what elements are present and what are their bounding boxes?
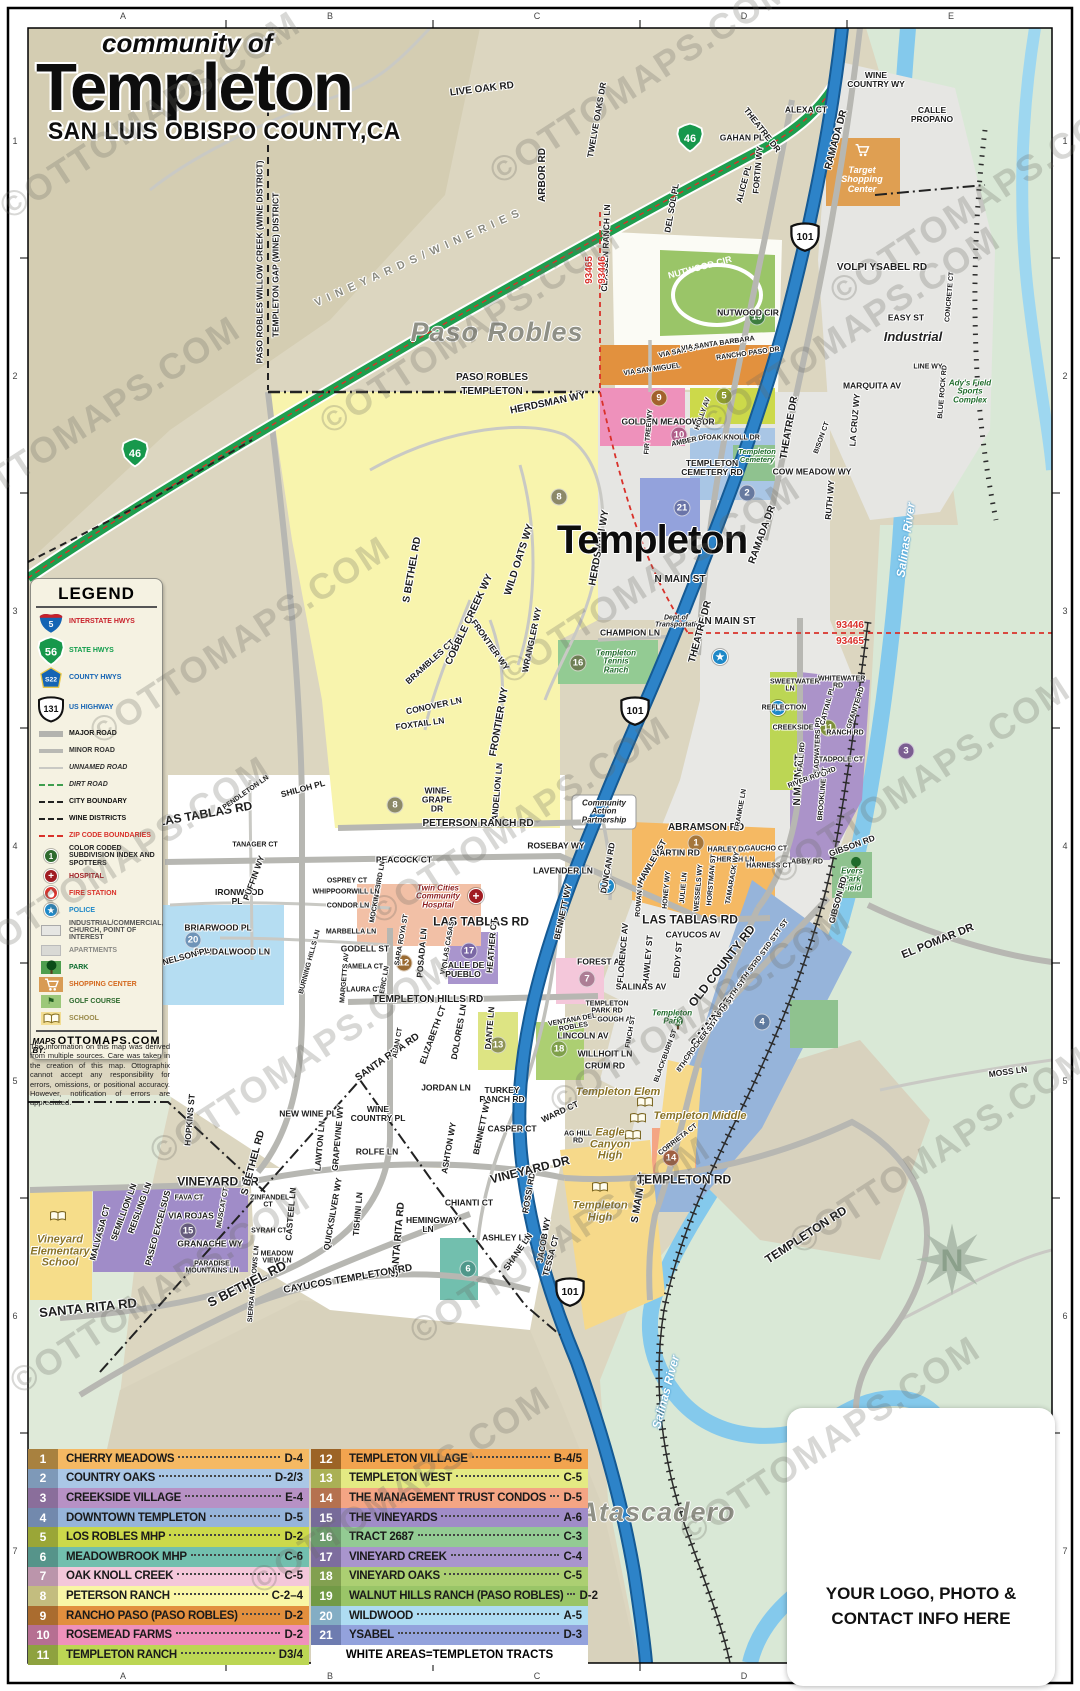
leader-dots: [451, 1554, 560, 1556]
tract-row: 19WALNUT HILLS RANCH (PASO ROBLES)D-2: [311, 1586, 588, 1606]
svg-text:56: 56: [45, 646, 57, 658]
legend-swatch-box-industrial: [36, 925, 66, 936]
legend-swatch-box-park: [36, 961, 66, 974]
grid-number: 7: [12, 1546, 17, 1556]
legend-item: ★POLICE: [36, 903, 157, 919]
grid-number: 7: [1062, 1546, 1067, 1556]
tract-name: CREEKSIDE VILLAGE: [66, 1492, 181, 1504]
page-title: Templeton: [36, 59, 419, 118]
tract-grid-ref: B-4/5: [554, 1453, 582, 1465]
svg-text:131: 131: [43, 704, 58, 714]
legend-swatch-shield-state: 56: [36, 636, 66, 666]
tract-number: 3: [28, 1488, 58, 1508]
grid-number: 5: [12, 1076, 17, 1086]
tract-number: 11: [28, 1645, 58, 1665]
legend-item-label: STATE HWYS: [66, 647, 114, 654]
legend-item-label: MAJOR ROAD: [66, 730, 117, 737]
tract-entry: WALNUT HILLS RANCH (PASO ROBLES)D-2: [341, 1586, 604, 1606]
leader-dots: [177, 1573, 280, 1575]
legend-item: +HOSPITAL: [36, 869, 157, 885]
leader-dots: [441, 1515, 559, 1517]
grid-number: 2: [1062, 371, 1067, 381]
tract-row: 21YSABELD-3: [311, 1625, 588, 1645]
tract-number: 5: [28, 1527, 58, 1547]
legend-item-label: US HIGHWAY: [66, 704, 113, 711]
tract-grid-ref: C-5: [563, 1472, 582, 1484]
legend-item: DIRT ROAD: [36, 777, 157, 793]
logo-placeholder-box: YOUR LOGO, PHOTO & CONTACT INFO HERE: [787, 1408, 1055, 1686]
tract-number: 10: [28, 1625, 58, 1645]
legend-item-label: PARK: [66, 964, 88, 971]
legend-item-label: APARTMENTS: [66, 947, 117, 954]
grid-letter: B: [327, 1671, 333, 1681]
tract-number: 20: [311, 1606, 341, 1626]
tract-name: VINEYARD CREEK: [349, 1551, 447, 1563]
tract-number: 9: [28, 1606, 58, 1626]
legend-item-label: WINE DISTRICTS: [66, 815, 126, 822]
tract-grid-ref: C-3: [563, 1531, 582, 1543]
legend-item-label: SHOPPING CENTER: [66, 981, 137, 988]
tract-grid-ref: D-3: [563, 1629, 582, 1641]
leader-dots: [472, 1456, 550, 1458]
tract-entry: CREEKSIDE VILLAGEE-4: [58, 1488, 309, 1508]
tract-grid-ref: C-4: [563, 1551, 582, 1563]
tract-grid-ref: A-6: [563, 1512, 582, 1524]
tract-grid-ref: A-5: [563, 1610, 582, 1622]
compass-rose-icon: N: [915, 1223, 989, 1302]
leader-dots: [159, 1475, 271, 1477]
tract-name: DOWNTOWN TEMPLETON: [66, 1512, 206, 1524]
tract-entry: CHERRY MEADOWSD-4: [58, 1449, 309, 1469]
tract-row: 12TEMPLETON VILLAGEB-4/5: [311, 1449, 588, 1469]
legend-items: 5INTERSTATE HWYS56STATE HWYSS22COUNTY HW…: [36, 610, 157, 1027]
legend-item: MAJOR ROAD: [36, 726, 157, 742]
legend-swatch-road-dirt: [36, 784, 66, 786]
tract-name: YSABEL: [349, 1629, 394, 1641]
tract-grid-ref: D-4: [284, 1453, 303, 1465]
tract-entry: TRACT 2687C-3: [341, 1527, 588, 1547]
grid-number: 3: [1062, 606, 1067, 616]
legend-item-label: ZIP CODE BOUNDARIES: [66, 832, 151, 839]
legend-item-label: SCHOOL: [66, 1015, 99, 1022]
tract-grid-ref: C-2–4: [272, 1590, 303, 1602]
tract-row: 11TEMPLETON RANCHD3/4: [28, 1645, 309, 1665]
tract-name: WILDWOOD: [349, 1610, 413, 1622]
legend-item: S22COUNTY HWYS: [36, 667, 157, 689]
grid-number: 3: [12, 606, 17, 616]
tract-grid-ref: D-5: [563, 1492, 582, 1504]
tract-name: VINEYARD OAKS: [349, 1570, 440, 1582]
tract-entry: VINEYARD OAKSC-5: [341, 1567, 588, 1587]
leader-dots: [176, 1632, 281, 1634]
grid-number: 2: [12, 371, 17, 381]
tract-name: OAK KNOLL CREEK: [66, 1570, 173, 1582]
tract-number: 14: [311, 1488, 341, 1508]
grid-letter: C: [534, 1671, 541, 1681]
tract-row: 8PETERSON RANCHC-2–4: [28, 1586, 309, 1606]
tract-entry: TEMPLETON RANCHD3/4: [58, 1645, 309, 1665]
tract-row: 1CHERRY MEADOWSD-4: [28, 1449, 309, 1469]
grid-letter: C: [534, 11, 541, 21]
tract-row: 6MEADOWBROOK MHPC-6: [28, 1547, 309, 1567]
tract-name: MEADOWBROOK MHP: [66, 1551, 187, 1563]
tract-name: LOS ROBLES MHP: [66, 1531, 165, 1543]
legend-item: ZIP CODE BOUNDARIES: [36, 828, 157, 844]
legend-item-label: GOLF COURSE: [66, 998, 120, 1005]
legend-swatch-police: ★: [36, 903, 66, 917]
tract-number: 6: [28, 1547, 58, 1567]
tract-grid-ref: D-2: [284, 1610, 303, 1622]
tract-entry: THE VINEYARDSA-6: [341, 1508, 588, 1528]
tract-name: COUNTRY OAKS: [66, 1472, 155, 1484]
tract-row: 15THE VINEYARDSA-6: [311, 1508, 588, 1528]
legend-item: 5INTERSTATE HWYS: [36, 610, 157, 634]
legend-swatch-shield-interstate: 5: [36, 610, 66, 634]
tract-name: CHERRY MEADOWS: [66, 1453, 174, 1465]
grid-letter: B: [327, 11, 333, 21]
tract-row: 13TEMPLETON WESTC-5: [311, 1469, 588, 1489]
grid-number: 4: [1062, 841, 1067, 851]
tract-row: 7OAK KNOLL CREEKC-5: [28, 1567, 309, 1587]
tract-entry: COUNTRY OAKSD-2/3: [58, 1469, 309, 1489]
tract-number: 8: [28, 1586, 58, 1606]
leader-dots: [417, 1613, 559, 1615]
tract-row: 3CREEKSIDE VILLAGEE-4: [28, 1488, 309, 1508]
tract-number: 12: [311, 1449, 341, 1469]
tract-entry: THE MANAGEMENT TRUST CONDOSD-5: [341, 1488, 588, 1508]
legend-item-label: COLOR CODED SUBDIVISION INDEX AND SPOTTE…: [66, 845, 157, 867]
tract-row: 10ROSEMEAD FARMSD-2: [28, 1625, 309, 1645]
tract-name: TEMPLETON RANCH: [66, 1649, 177, 1661]
tract-number: 1: [28, 1449, 58, 1469]
grid-number: 4: [12, 841, 17, 851]
legend-item-label: INDUSTRIAL/COMMERCIAL, CHURCH, POINT OF …: [66, 920, 164, 942]
tract-row: 4DOWNTOWN TEMPLETOND-5: [28, 1508, 309, 1528]
leader-dots: [181, 1652, 275, 1654]
legend-item: PARK: [36, 960, 157, 976]
grid-letter: D: [741, 1671, 748, 1681]
tract-grid-ref: D-2: [284, 1629, 303, 1641]
tract-entry: MEADOWBROOK MHPC-6: [58, 1547, 309, 1567]
tract-name: RANCHO PASO (PASO ROBLES): [66, 1610, 238, 1622]
tract-number: 13: [311, 1469, 341, 1489]
leader-dots: [567, 1593, 575, 1595]
svg-text:5: 5: [49, 619, 54, 629]
tract-grid-ref: D3/4: [279, 1649, 303, 1661]
tract-row: 2COUNTRY OAKSD-2/3: [28, 1469, 309, 1489]
legend-swatch-box-golf: ⚑: [36, 995, 66, 1008]
tract-number: 2: [28, 1469, 58, 1489]
legend-swatch-box-apartments: [36, 945, 66, 956]
legend-item-label: CITY BOUNDARY: [66, 798, 127, 805]
tract-row: 20WILDWOODA-5: [311, 1606, 588, 1626]
grid-letter: A: [120, 11, 126, 21]
legend-item: INDUSTRIAL/COMMERCIAL, CHURCH, POINT OF …: [36, 920, 157, 942]
tract-number: 19: [311, 1586, 341, 1606]
tract-name: TEMPLETON VILLAGE: [349, 1453, 468, 1465]
tract-entry: LOS ROBLES MHPD-2: [58, 1527, 309, 1547]
tract-entry: OAK KNOLL CREEKC-5: [58, 1567, 309, 1587]
tract-row: 9RANCHO PASO (PASO ROBLES)D-2: [28, 1606, 309, 1626]
legend-swatch-spotter: 1: [36, 849, 66, 863]
tract-entry: VINEYARD CREEKC-4: [341, 1547, 588, 1567]
legend-swatch-hospital: +: [36, 869, 66, 883]
tract-number: 18: [311, 1567, 341, 1587]
tract-entry: WILDWOODA-5: [341, 1606, 588, 1626]
tract-number: 16: [311, 1527, 341, 1547]
tract-row: 17VINEYARD CREEKC-4: [311, 1547, 588, 1567]
grid-letter: A: [120, 1671, 126, 1681]
leader-dots: [398, 1632, 560, 1634]
tract-name: THE VINEYARDS: [349, 1512, 437, 1524]
tract-name: ROSEMEAD FARMS: [66, 1629, 172, 1641]
legend-item-label: FIRE STATION: [66, 890, 117, 897]
grid-number: 1: [1062, 136, 1067, 146]
tract-name: THE MANAGEMENT TRUST CONDOS: [349, 1492, 546, 1504]
grid-letter: E: [948, 11, 954, 21]
legend-item: ⚑GOLF COURSE: [36, 994, 157, 1010]
legend-swatch-box-school: [36, 1012, 66, 1025]
leader-dots: [169, 1534, 280, 1536]
legend-item: 131US HIGHWAY: [36, 691, 157, 725]
tract-entry: TEMPLETON WESTC-5: [341, 1469, 588, 1489]
legend-item: FIRE STATION: [36, 886, 157, 902]
tract-grid-ref: E-4: [285, 1492, 303, 1504]
legend-item: 56STATE HWYS: [36, 636, 157, 666]
tract-index-footer: WHITE AREAS=TEMPLETON TRACTS: [311, 1645, 588, 1665]
grid-number: 1: [12, 136, 17, 146]
leader-dots: [210, 1515, 281, 1517]
grid-number: 6: [12, 1311, 17, 1321]
logo-placeholder-text: YOUR LOGO, PHOTO & CONTACT INFO HERE: [826, 1582, 1016, 1631]
title-block: community of Templeton SAN LUIS OBISPO C…: [36, 28, 419, 146]
legend-item-label: MINOR ROAD: [66, 747, 115, 754]
tract-entry: RANCHO PASO (PASO ROBLES)D-2: [58, 1606, 309, 1626]
tract-grid-ref: D-2/3: [275, 1472, 303, 1484]
legend-item-label: COUNTY HWYS: [66, 674, 121, 681]
leader-dots: [550, 1495, 559, 1497]
svg-text:S22: S22: [45, 676, 57, 683]
logo-line-1: YOUR LOGO, PHOTO &: [826, 1582, 1016, 1607]
tract-number: 15: [311, 1508, 341, 1528]
tract-entry: YSABELD-3: [341, 1625, 588, 1645]
leader-dots: [418, 1534, 560, 1536]
tract-row: 5LOS ROBLES MHPD-2: [28, 1527, 309, 1547]
tract-grid-ref: D-2: [284, 1531, 303, 1543]
legend-swatch-road-unnamed: [36, 767, 66, 769]
svg-text:N: N: [941, 1242, 964, 1278]
tract-number: 4: [28, 1508, 58, 1528]
leader-dots: [185, 1495, 281, 1497]
legend-item: WINE DISTRICTS: [36, 811, 157, 827]
tract-grid-ref: C-5: [563, 1570, 582, 1582]
legend-swatch-boundary-wine: [36, 818, 66, 820]
legend-swatch-boundary-city: [36, 801, 66, 803]
leader-dots: [178, 1456, 280, 1458]
tract-grid-ref: C-5: [284, 1570, 303, 1582]
tract-number: 7: [28, 1567, 58, 1587]
tract-name: PETERSON RANCH: [66, 1590, 170, 1602]
legend-swatch-road-minor: [36, 749, 66, 753]
leader-dots: [242, 1613, 281, 1615]
tract-entry: DOWNTOWN TEMPLETOND-5: [58, 1508, 309, 1528]
tract-number: 21: [311, 1625, 341, 1645]
legend-swatch-box-shopping: [36, 977, 66, 992]
grid-number: 6: [1062, 1311, 1067, 1321]
tract-name: TRACT 2687: [349, 1531, 414, 1543]
tract-name: TEMPLETON WEST: [349, 1472, 452, 1484]
legend-item-label: DIRT ROAD: [66, 781, 108, 788]
legend-item: APARTMENTS: [36, 943, 157, 959]
legend-item-label: INTERSTATE HWYS: [66, 618, 135, 625]
leader-dots: [444, 1573, 560, 1575]
grid-number: 5: [1062, 1076, 1067, 1086]
grid-letter: D: [741, 11, 748, 21]
tract-entry: TEMPLETON VILLAGEB-4/5: [341, 1449, 588, 1469]
legend-swatch-shield-us: 131: [36, 691, 66, 725]
disclaimer-text: The information on this map was derived …: [30, 1042, 170, 1108]
tract-grid-ref: D-2: [579, 1590, 598, 1602]
title-subtitle: SAN LUIS OBISPO COUNTY,CA: [48, 118, 401, 146]
leader-dots: [456, 1475, 560, 1477]
tract-grid-ref: D-5: [284, 1512, 303, 1524]
legend-item: MINOR ROAD: [36, 743, 157, 759]
legend-swatch-fire: [36, 886, 66, 900]
legend-item-label: POLICE: [66, 907, 95, 914]
legend-swatch-road-major: [36, 731, 66, 737]
legend-item: 1COLOR CODED SUBDIVISION INDEX AND SPOTT…: [36, 845, 157, 867]
legend-item: CITY BOUNDARY: [36, 794, 157, 810]
legend-item: UNNAMED ROAD: [36, 760, 157, 776]
legend-swatch-shield-county: S22: [36, 667, 66, 689]
tract-name: WALNUT HILLS RANCH (PASO ROBLES): [349, 1590, 563, 1602]
legend-title: LEGEND: [36, 584, 157, 608]
legend-item: SHOPPING CENTER: [36, 977, 157, 993]
legend-item: SCHOOL: [36, 1011, 157, 1027]
map-page: N 4646101101101 ★★★+ 1234567889101112131…: [0, 0, 1080, 1691]
tract-number: 17: [311, 1547, 341, 1567]
tract-row: 14THE MANAGEMENT TRUST CONDOSD-5: [311, 1488, 588, 1508]
tract-entry: ROSEMEAD FARMSD-2: [58, 1625, 309, 1645]
legend: LEGEND 5INTERSTATE HWYS56STATE HWYSS22CO…: [30, 578, 163, 1060]
leader-dots: [174, 1593, 268, 1595]
legend-swatch-boundary-zip: [36, 835, 66, 837]
tract-row: 18VINEYARD OAKSC-5: [311, 1567, 588, 1587]
legend-item-label: UNNAMED ROAD: [66, 764, 127, 771]
tract-grid-ref: C-6: [284, 1551, 303, 1563]
leader-dots: [191, 1554, 281, 1556]
legend-item-label: HOSPITAL: [66, 873, 104, 880]
logo-line-2: CONTACT INFO HERE: [826, 1607, 1016, 1632]
tract-row: 16TRACT 2687C-3: [311, 1527, 588, 1547]
tract-entry: PETERSON RANCHC-2–4: [58, 1586, 309, 1606]
